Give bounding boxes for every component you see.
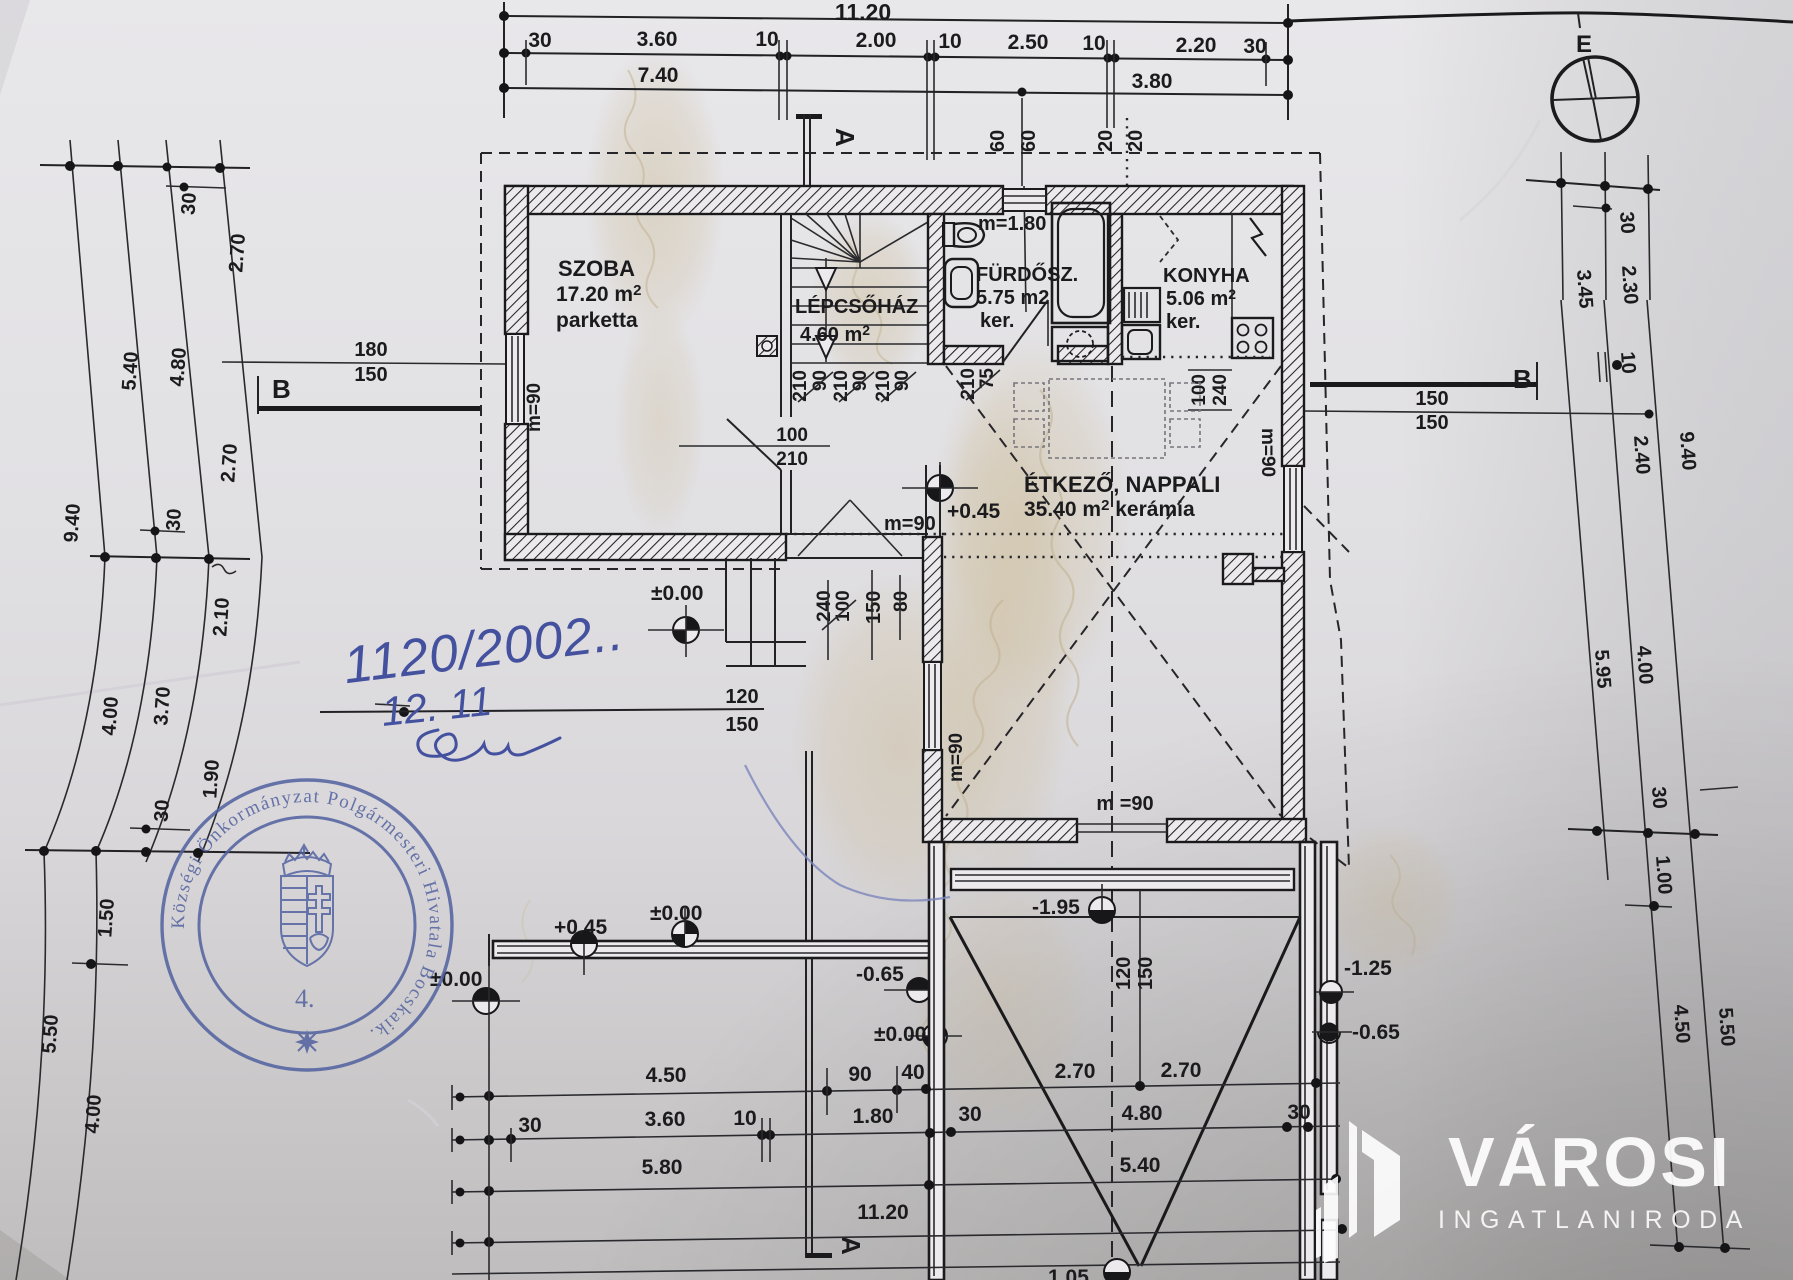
svg-text:30: 30	[150, 799, 173, 823]
svg-text:m=90: m=90	[524, 383, 545, 432]
svg-text:4.00: 4.00	[81, 1094, 106, 1134]
svg-text:30: 30	[162, 508, 185, 532]
svg-text:90: 90	[850, 370, 871, 391]
svg-text:2.50: 2.50	[1008, 31, 1049, 54]
svg-text:10: 10	[733, 1107, 756, 1130]
svg-text:ker.: ker.	[980, 310, 1014, 332]
svg-text:5.75 m2: 5.75 m2	[976, 287, 1049, 309]
svg-text:150: 150	[1415, 412, 1448, 434]
svg-text:210: 210	[873, 370, 894, 402]
svg-text:4.80: 4.80	[1122, 1102, 1163, 1125]
svg-text:180: 180	[354, 339, 387, 361]
svg-text:1.05: 1.05	[1048, 1266, 1089, 1280]
svg-text:m=90: m=90	[946, 733, 967, 782]
svg-text:150: 150	[863, 591, 885, 624]
svg-text:+0.45: +0.45	[554, 916, 607, 939]
svg-text:4.80: 4.80	[166, 347, 191, 387]
svg-text:3.60: 3.60	[637, 28, 678, 51]
svg-text:9.40: 9.40	[1675, 431, 1700, 471]
svg-text:2.40: 2.40	[1629, 435, 1654, 475]
svg-text:1.80: 1.80	[853, 1105, 894, 1128]
svg-text:m =90: m =90	[1096, 793, 1153, 815]
svg-text:2.70: 2.70	[1055, 1060, 1096, 1083]
svg-text:10: 10	[1616, 351, 1639, 375]
svg-text:3.80: 3.80	[1132, 70, 1173, 93]
svg-text:30: 30	[958, 1103, 981, 1126]
svg-text:FÜRDŐSZ.: FÜRDŐSZ.	[976, 263, 1078, 286]
svg-text:+0.45: +0.45	[947, 500, 1000, 523]
svg-text:30: 30	[518, 1114, 541, 1137]
svg-text:2.10: 2.10	[209, 597, 234, 637]
svg-text:120: 120	[725, 686, 758, 708]
svg-text:120: 120	[1113, 957, 1135, 990]
svg-text:75: 75	[977, 368, 998, 390]
svg-text:4.00: 4.00	[98, 696, 123, 736]
svg-text:5.80: 5.80	[642, 1156, 683, 1179]
svg-text:20: 20	[1095, 130, 1117, 152]
svg-text:5.95: 5.95	[1590, 649, 1615, 689]
svg-text:m=1.80: m=1.80	[978, 213, 1046, 235]
svg-text:2.30: 2.30	[1617, 265, 1642, 305]
svg-text:10: 10	[755, 28, 778, 51]
svg-text:35.40 m2 kerámia: 35.40 m2 kerámia	[1024, 497, 1195, 521]
svg-text:5.06 m2: 5.06 m2	[1166, 286, 1236, 310]
svg-text:m=90: m=90	[1257, 428, 1278, 477]
svg-text:11.20: 11.20	[857, 1201, 908, 1224]
svg-text:4.50: 4.50	[1669, 1004, 1694, 1044]
svg-text:80: 80	[891, 591, 912, 612]
svg-text:20: 20	[1125, 130, 1147, 152]
svg-text:m=90: m=90	[884, 513, 936, 535]
svg-text:ÉTKEZŐ, NAPPALI: ÉTKEZŐ, NAPPALI	[1024, 472, 1220, 497]
svg-text:5.50: 5.50	[38, 1014, 63, 1054]
svg-text:KONYHA: KONYHA	[1163, 265, 1250, 287]
svg-text:30: 30	[1287, 1101, 1310, 1124]
svg-text:3.45: 3.45	[1572, 269, 1597, 309]
svg-text:210: 210	[831, 370, 852, 402]
svg-text:150: 150	[1415, 388, 1448, 410]
svg-text:1.90: 1.90	[199, 759, 224, 799]
svg-text:90: 90	[892, 370, 913, 391]
svg-text:100: 100	[776, 425, 808, 446]
svg-text:60: 60	[987, 130, 1009, 152]
svg-text:10: 10	[1082, 32, 1105, 55]
svg-text:±0.00: ±0.00	[651, 582, 703, 605]
svg-text:-1.95: -1.95	[1032, 896, 1080, 919]
svg-text:240: 240	[1210, 374, 1231, 406]
svg-text:5.40: 5.40	[1120, 1154, 1161, 1177]
svg-text:2.00: 2.00	[856, 29, 897, 52]
svg-text:5.40: 5.40	[118, 351, 143, 391]
svg-text:±0.00: ±0.00	[650, 902, 702, 925]
svg-text:150: 150	[354, 364, 387, 386]
svg-text:INGATLANIRODA: INGATLANIRODA	[1438, 1206, 1751, 1234]
svg-text:-1.25: -1.25	[1344, 957, 1392, 980]
svg-text:30: 30	[1615, 211, 1638, 235]
svg-text:150: 150	[725, 714, 758, 736]
svg-text:parketta: parketta	[556, 309, 638, 332]
svg-text:30: 30	[177, 192, 200, 216]
svg-text:240: 240	[814, 590, 835, 622]
svg-text:11.20: 11.20	[835, 0, 891, 25]
svg-text:SZOBA: SZOBA	[558, 256, 635, 281]
svg-text:30: 30	[528, 29, 551, 52]
svg-text:VÁROSI: VÁROSI	[1448, 1123, 1731, 1201]
svg-text:9.40: 9.40	[60, 503, 85, 543]
svg-text:4.60 m2: 4.60 m2	[800, 322, 870, 346]
svg-text:2.20: 2.20	[1176, 34, 1217, 57]
svg-text:90: 90	[848, 1063, 871, 1086]
svg-text:-0.65: -0.65	[856, 963, 904, 986]
svg-text:ker.: ker.	[1166, 311, 1200, 333]
svg-text:B: B	[272, 374, 291, 404]
svg-text:2.70: 2.70	[225, 233, 250, 273]
svg-text:E: E	[1576, 31, 1592, 58]
svg-text:210: 210	[790, 370, 811, 402]
svg-text:B: B	[1513, 364, 1532, 394]
svg-text:-0.65: -0.65	[1352, 1021, 1400, 1044]
svg-text:±0.00: ±0.00	[874, 1023, 926, 1046]
svg-text:3.70: 3.70	[150, 686, 175, 726]
svg-text:2.70: 2.70	[217, 443, 242, 483]
svg-text:150: 150	[1135, 957, 1157, 990]
svg-text:1.00: 1.00	[1651, 855, 1676, 895]
svg-text:4.00: 4.00	[1632, 645, 1657, 685]
svg-text:4.50: 4.50	[646, 1064, 687, 1087]
svg-text:3.60: 3.60	[645, 1108, 686, 1131]
svg-text:A: A	[830, 128, 860, 147]
svg-text:60: 60	[1018, 130, 1040, 152]
svg-text:2.70: 2.70	[1161, 1059, 1202, 1082]
svg-text:4.: 4.	[295, 984, 315, 1013]
svg-text:17.20 m2: 17.20 m2	[556, 282, 641, 306]
svg-text:5.50: 5.50	[1714, 1007, 1739, 1047]
svg-text:A: A	[836, 1236, 866, 1255]
svg-text:7.40: 7.40	[638, 64, 679, 87]
svg-text:210: 210	[776, 449, 808, 470]
svg-text:1.50: 1.50	[94, 898, 119, 938]
svg-text:10: 10	[938, 30, 961, 53]
svg-text:40: 40	[901, 1061, 924, 1084]
svg-text:30: 30	[1243, 35, 1266, 58]
svg-text:LÉPCSŐHÁZ: LÉPCSŐHÁZ	[795, 295, 918, 318]
svg-text:30: 30	[1647, 786, 1670, 810]
